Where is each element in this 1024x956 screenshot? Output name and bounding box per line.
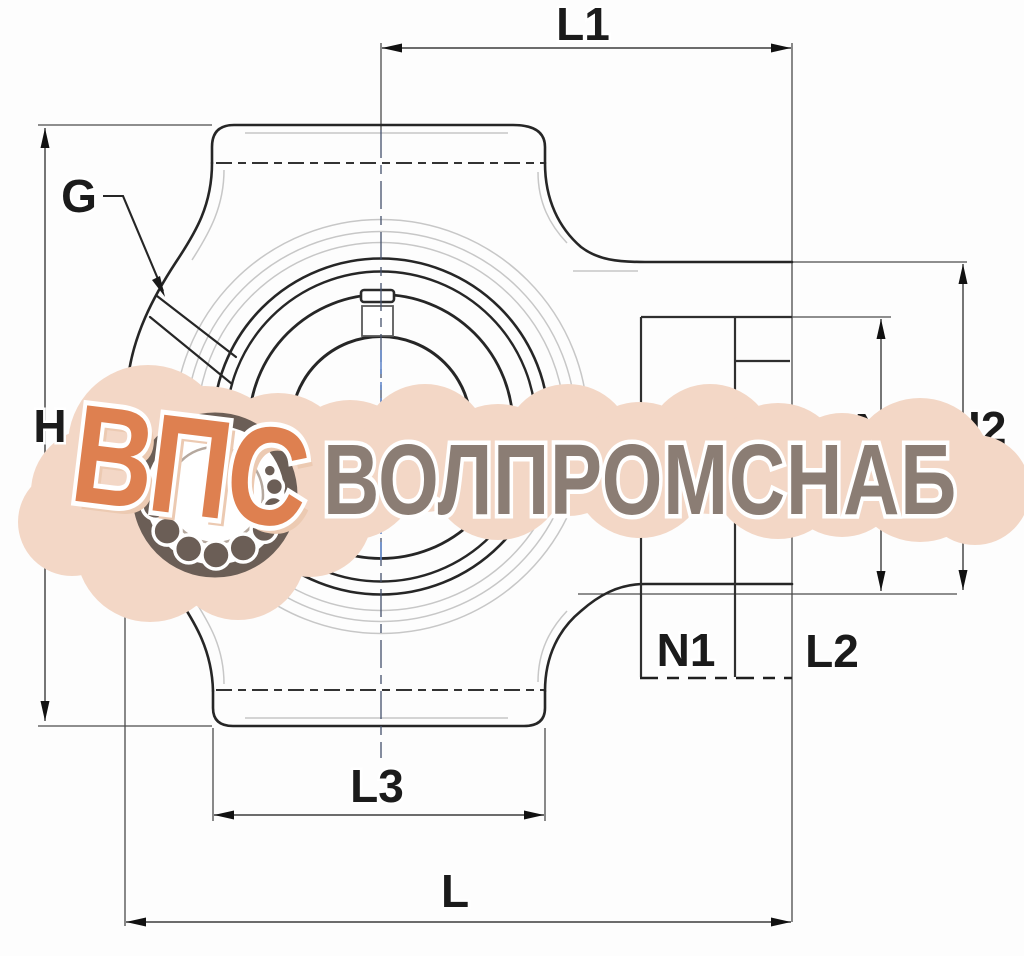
right-side-top-rail bbox=[545, 163, 792, 262]
dimension-label-l3: L3 bbox=[350, 760, 404, 812]
set-screw bbox=[361, 290, 394, 302]
dimension-label-h: H bbox=[33, 400, 66, 452]
g-leader-line bbox=[103, 196, 165, 297]
g-leader-arrowhead bbox=[152, 276, 165, 297]
watermark-logo-text: ВПС bbox=[64, 374, 315, 558]
dimension-label-l2: L2 bbox=[805, 625, 859, 677]
watermark-company-text: ВОЛПРОМСНАБ bbox=[323, 425, 957, 537]
dimension-label-l: L bbox=[441, 865, 469, 917]
dimension-label-g: G bbox=[61, 170, 97, 222]
technical-drawing-canvas: N2 H2 bbox=[0, 0, 1024, 956]
dimension-label-n1: N1 bbox=[657, 624, 716, 676]
technical-drawing-page: N2 H2 bbox=[0, 0, 1024, 956]
dimension-label-l1: L1 bbox=[556, 0, 610, 50]
top-flange bbox=[212, 125, 545, 163]
shaft-keyway bbox=[362, 306, 393, 336]
bottom-flange bbox=[213, 691, 545, 726]
